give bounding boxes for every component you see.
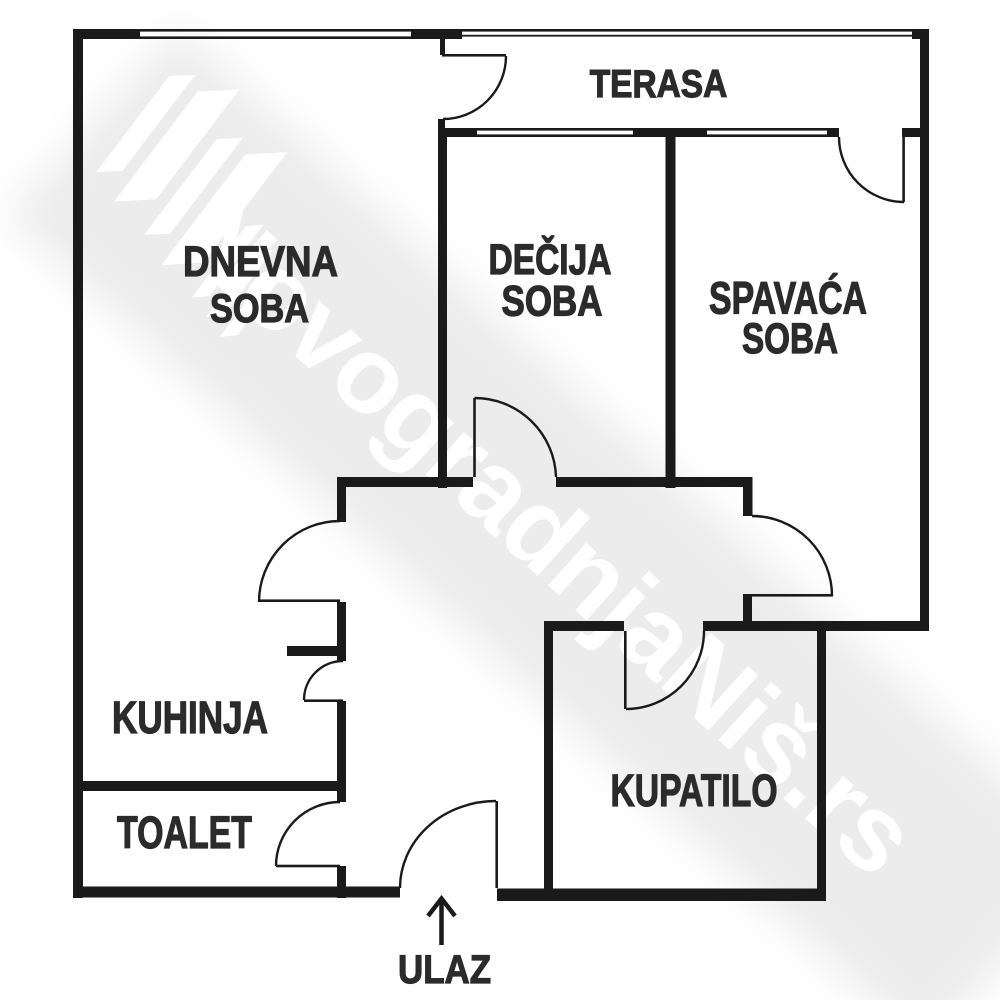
svg-text:ULAZ: ULAZ [398,948,491,992]
svg-text:KUHINJA: KUHINJA [112,692,268,743]
svg-text:TERASA: TERASA [590,63,728,106]
svg-text:TOALET: TOALET [117,807,252,858]
svg-text:SOBA: SOBA [742,316,838,363]
svg-text:SOBA: SOBA [210,287,309,331]
svg-text:DNEVNA: DNEVNA [183,239,338,286]
svg-text:SOBA: SOBA [502,279,603,326]
svg-text:DEČIJA: DEČIJA [489,235,612,284]
svg-text:KUPATILO: KUPATILO [611,765,778,816]
